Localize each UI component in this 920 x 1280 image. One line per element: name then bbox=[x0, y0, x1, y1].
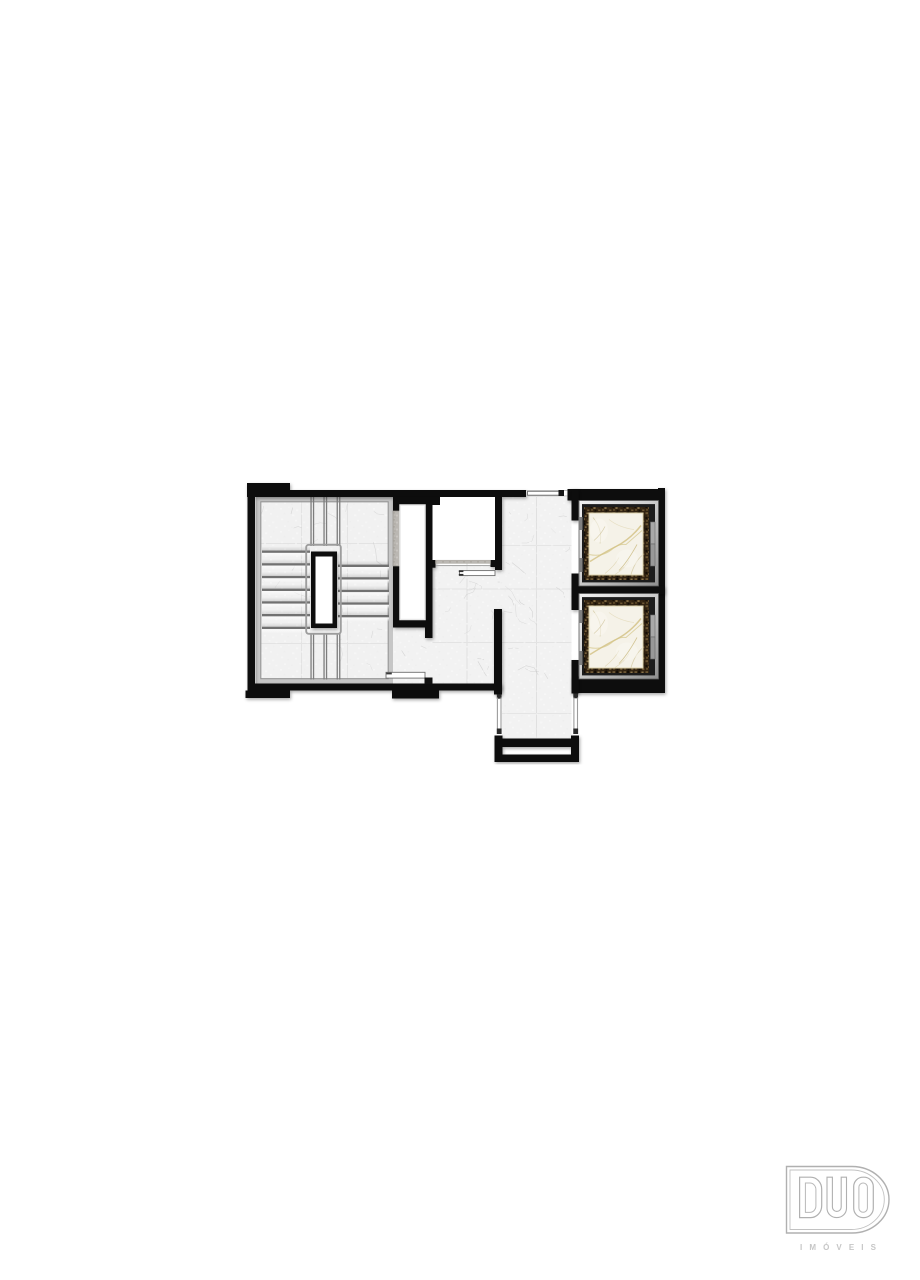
svg-text:IMÓVEIS: IMÓVEIS bbox=[800, 1243, 883, 1252]
